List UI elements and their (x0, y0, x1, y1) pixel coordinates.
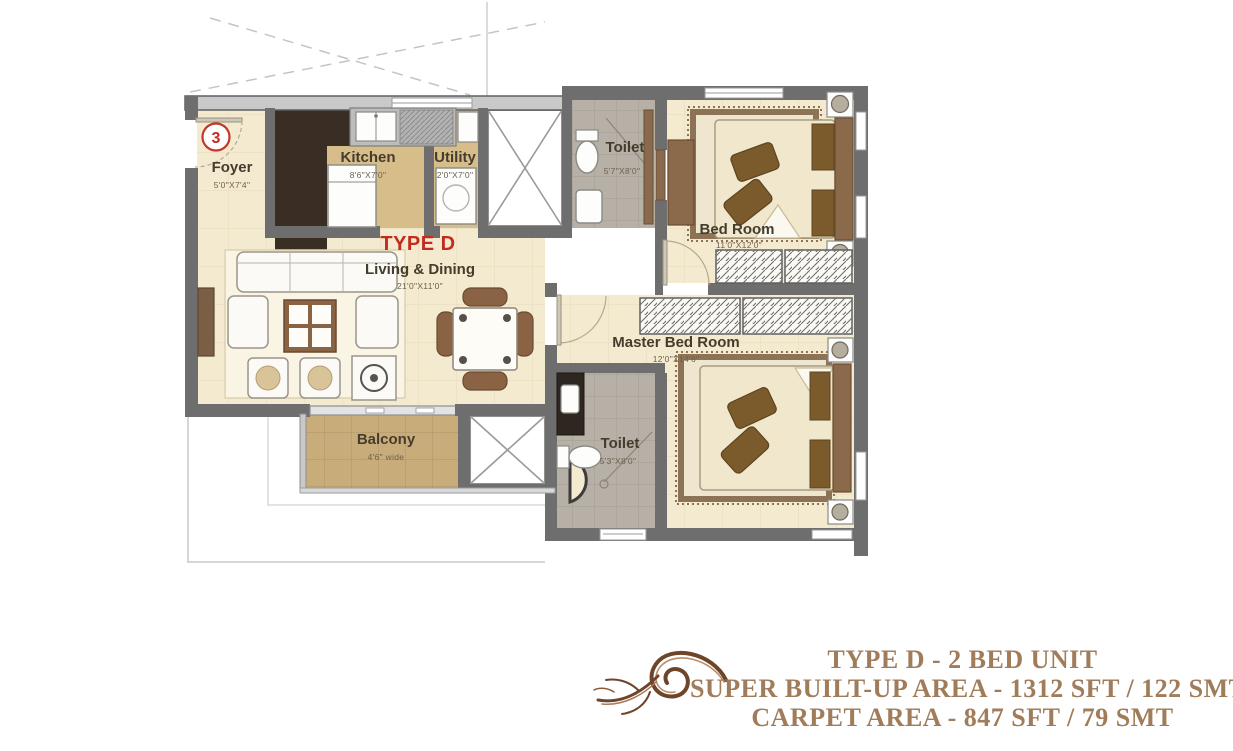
toilet-top-vanity (644, 110, 653, 224)
floor-plan: 3 (0, 0, 1233, 751)
kitchen-label: Kitchen (340, 149, 395, 166)
sofa-right-seat (356, 296, 398, 348)
living-label: Living & Dining (365, 261, 475, 278)
bedroom-dresser (668, 140, 694, 225)
type-label: TYPE D (380, 233, 455, 255)
toilet-top-door-leaf (656, 150, 665, 200)
toilet-top-label: Toilet (606, 139, 645, 156)
bedroom-bolster-2 (812, 190, 834, 236)
bedroom-label: Bed Room (700, 221, 775, 238)
floor-kitchen-dark-top (275, 108, 353, 146)
unit-number: 3 (212, 130, 221, 147)
toilet-bottom-basin (561, 385, 579, 413)
balcony-railing (300, 488, 555, 493)
bedroom-door-leaf (663, 240, 667, 285)
window-right-3 (856, 452, 866, 500)
tv-unit (198, 288, 214, 356)
utility-sink (458, 112, 478, 142)
toilet-bottom-dim: 5'3"X8'0" (600, 456, 637, 466)
window-bottom-master (812, 530, 852, 539)
floor-plan-page: 3 (0, 0, 1233, 751)
toilet-bottom-label: Toilet (601, 435, 640, 452)
unit-number-badge: 3 (203, 124, 230, 151)
window-right-2 (856, 196, 866, 238)
floor-balcony (306, 414, 460, 488)
bedroom-bolster-1 (812, 124, 834, 170)
master-label: Master Bed Room (612, 334, 740, 351)
construction-lines (190, 2, 545, 96)
bedroom-headboard (835, 118, 853, 240)
bedroom-dim: 11'0"X12'0" (716, 240, 762, 250)
balcony-label: Balcony (357, 431, 416, 448)
entrance-door-leaf (196, 118, 242, 122)
toilet-top-wc (576, 141, 598, 173)
lift-shaft-top (488, 110, 562, 226)
kitchen-counter (350, 108, 456, 146)
foyer-dim: 5'0"X7'4" (214, 180, 251, 190)
balcony-sliding-door (310, 406, 460, 415)
lift-shaft-bottom (470, 416, 545, 484)
dining-chair-top (463, 288, 507, 306)
window-right-1 (856, 112, 866, 150)
toilet-top-basin (576, 190, 602, 223)
toilet-top-dim: 5'7"X8'0" (604, 166, 641, 176)
master-dim: 12'0"X14'6" (653, 354, 700, 364)
summary-super-built-up: SUPER BUILT-UP AREA - 1312 SFT / 122 SMT (690, 674, 1233, 703)
summary-carpet-area: CARPET AREA - 847 SFT / 79 SMT (690, 703, 1233, 732)
kitchen-dim: 8'6"X7'0" (350, 170, 387, 180)
summary-title: TYPE D - 2 BED UNIT (690, 645, 1233, 674)
master-door-leaf (557, 295, 561, 345)
utility-dim: 2'0"X7'0" (437, 170, 474, 180)
master-headboard (833, 364, 851, 492)
master-bolster-1 (810, 372, 830, 420)
kitchen-drainer (400, 110, 453, 144)
unit-summary: TYPE D - 2 BED UNIT SUPER BUILT-UP AREA … (690, 645, 1233, 732)
living-dim: 21'0"X11'0" (397, 281, 443, 291)
utility-label: Utility (434, 149, 476, 166)
balcony-dim: 4'6" wide (368, 452, 405, 462)
master-bolster-2 (810, 440, 830, 488)
dining-chair-bottom (463, 372, 507, 390)
foyer-label: Foyer (212, 159, 253, 176)
toilet-bottom-wc (569, 446, 601, 468)
sofa-left-seat (228, 296, 268, 348)
